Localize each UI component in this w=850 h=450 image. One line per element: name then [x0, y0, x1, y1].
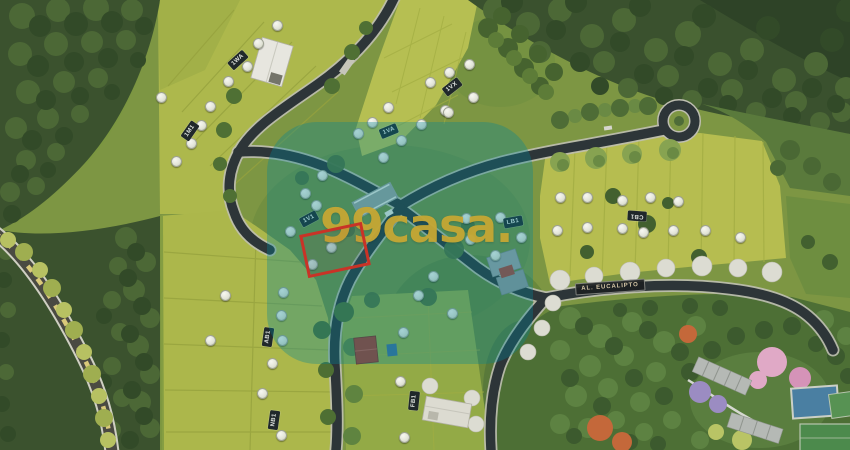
lot-marker [395, 376, 406, 387]
sports-court [829, 390, 850, 419]
lot-marker [582, 192, 593, 203]
lot-marker [171, 156, 182, 167]
lot-marker [242, 61, 253, 72]
lot-marker [425, 77, 436, 88]
lot-marker [443, 107, 454, 118]
block-badge-fb1: FB1 [408, 391, 420, 410]
lot-marker [272, 20, 283, 31]
lot-marker [668, 225, 679, 236]
lot-marker [617, 195, 628, 206]
lot-marker [205, 335, 216, 346]
lot-marker [552, 225, 563, 236]
lot-marker [383, 102, 394, 113]
block-badge-cb1: CB1 [627, 210, 647, 221]
lot-marker [638, 227, 649, 238]
lot-marker [464, 59, 475, 70]
lot-marker [267, 358, 278, 369]
lot-marker [582, 222, 593, 233]
lot-marker [220, 290, 231, 301]
lot-marker [645, 192, 656, 203]
lot-marker [700, 225, 711, 236]
sports-court [800, 424, 850, 450]
lot-marker [253, 38, 264, 49]
lot-marker [156, 92, 167, 103]
lot-marker [444, 67, 455, 78]
lot-marker [399, 432, 410, 443]
lot-marker [673, 196, 684, 207]
lot-marker [205, 101, 216, 112]
lot-marker [468, 92, 479, 103]
lot-marker [617, 223, 628, 234]
lot-marker [735, 232, 746, 243]
lot-marker [555, 192, 566, 203]
masterplan-aerial-photo: 1WA1M11VA1VX1V1LB1CB1AB1NB1FB1 AL. EUCAL… [0, 0, 850, 450]
lot-marker [223, 76, 234, 87]
lot-marker [276, 430, 287, 441]
lot-marker [257, 388, 268, 399]
